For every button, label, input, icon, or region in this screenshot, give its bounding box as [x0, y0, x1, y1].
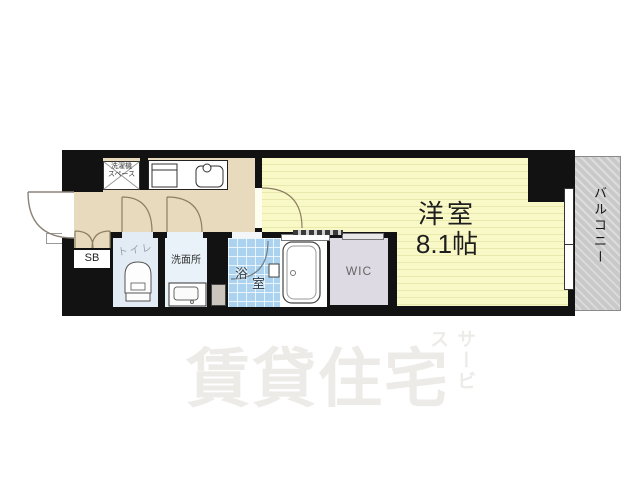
- bathroom-label-char2: 室: [252, 273, 265, 292]
- laundry-space-label: 洗濯機 スペース: [103, 163, 140, 179]
- floorplan-page: { "plan": { "rooms": { "living": { "name…: [0, 0, 640, 480]
- shoebox-label: SB: [74, 252, 110, 264]
- wall-block: [74, 158, 103, 192]
- entrance-door-opening: [62, 192, 74, 238]
- living-room-size: 8.1帖: [377, 229, 517, 259]
- washroom-label: 洗面所: [165, 251, 207, 266]
- balcony-window-upper: [564, 188, 574, 245]
- wall-block: [140, 158, 148, 190]
- laundry-label-line1: 洗濯機: [103, 163, 140, 171]
- wic-label: WIC: [330, 264, 388, 278]
- watermark-subtext: サービス: [424, 329, 478, 399]
- washroom-floor: [165, 238, 207, 307]
- entrance-floor: [74, 192, 110, 248]
- bathroom-door-opening: [232, 232, 262, 238]
- bathtub-zone: [280, 238, 327, 307]
- toilet-door-opening: [122, 232, 153, 238]
- utility-box: [211, 284, 226, 306]
- laundry-label-line2: スペース: [103, 171, 140, 179]
- balcony-label: バルコニー: [587, 186, 609, 296]
- living-door-opening: [255, 188, 262, 228]
- watermark-text: 賃貸住宅: [186, 328, 450, 420]
- bathroom-label-char1: 浴: [235, 263, 248, 282]
- living-room-name: 洋室: [377, 199, 517, 229]
- living-room-label: 洋室 8.1帖: [377, 199, 517, 259]
- washroom-door-opening: [167, 232, 203, 238]
- kitchen-counter: [148, 160, 228, 190]
- sliding-door-panel: [281, 234, 330, 241]
- balcony-window-lower: [564, 244, 574, 290]
- entrance-step: [46, 233, 63, 244]
- sliding-door-rail: [293, 230, 343, 235]
